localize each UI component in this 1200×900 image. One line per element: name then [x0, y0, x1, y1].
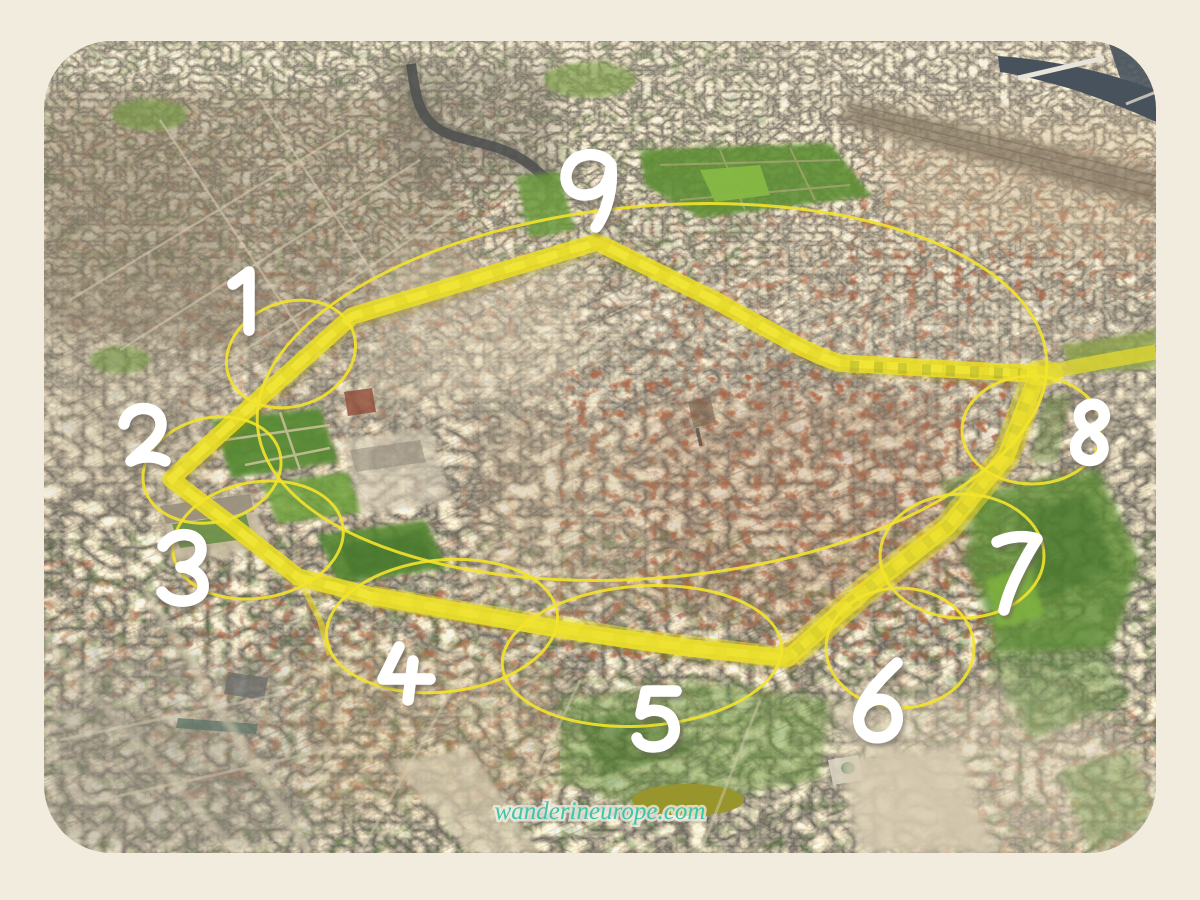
- svg-text:wanderineurope.com: wanderineurope.com: [495, 798, 706, 825]
